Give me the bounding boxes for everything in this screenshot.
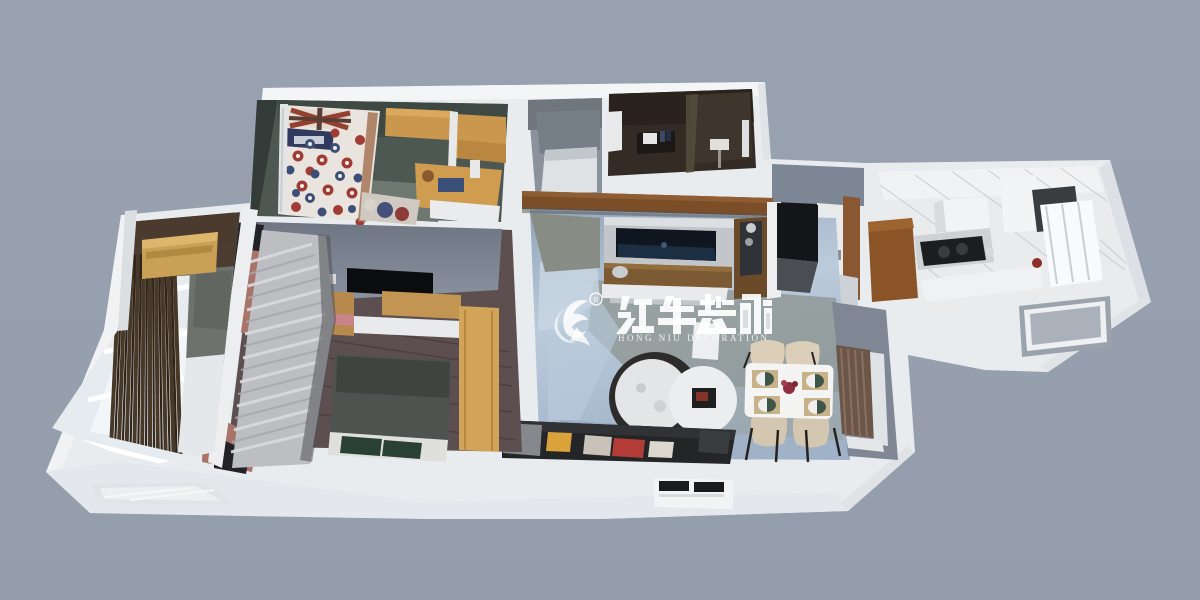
svg-text:R: R	[593, 295, 599, 305]
svg-text:HONG NIU DECORATION: HONG NIU DECORATION	[618, 333, 770, 343]
